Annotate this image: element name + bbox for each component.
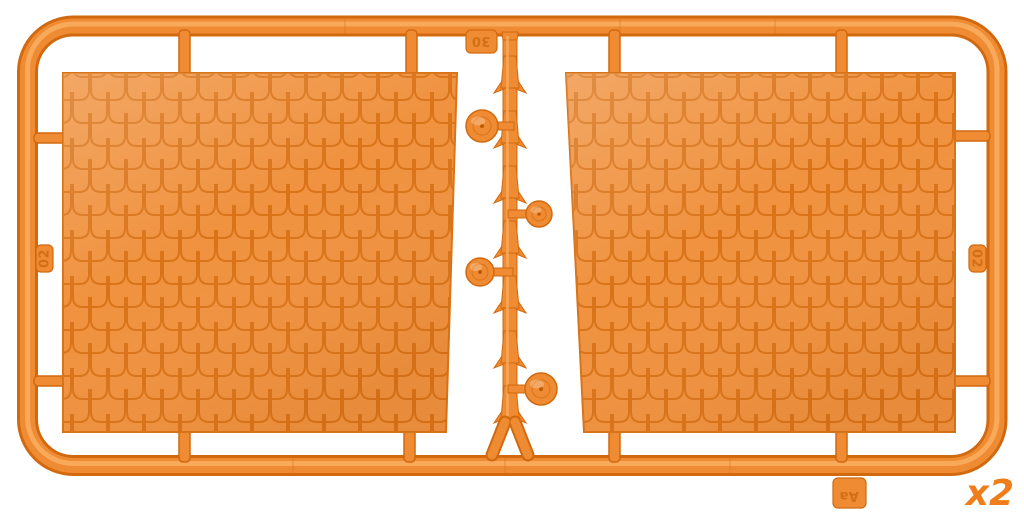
roof-tile-panel-left	[63, 73, 457, 432]
tab-top: 30	[466, 30, 497, 53]
ridge-strip-fork	[492, 422, 528, 455]
tab-bottom: Aa	[833, 478, 866, 508]
tab-left: 02	[36, 245, 53, 272]
sprue-photo: 30 02 02 Aa x2	[0, 0, 1024, 516]
sprue-drawing: 30 02 02 Aa	[0, 0, 1024, 516]
tab-left-label: 02	[38, 249, 53, 268]
tab-right-label: 02	[969, 249, 984, 268]
tab-bottom-label: Aa	[839, 488, 859, 503]
roof-tile-panel-right	[566, 73, 955, 432]
quantity-label: x2	[966, 476, 1014, 512]
tab-right: 02	[969, 245, 987, 272]
tab-top-label: 30	[471, 33, 490, 48]
